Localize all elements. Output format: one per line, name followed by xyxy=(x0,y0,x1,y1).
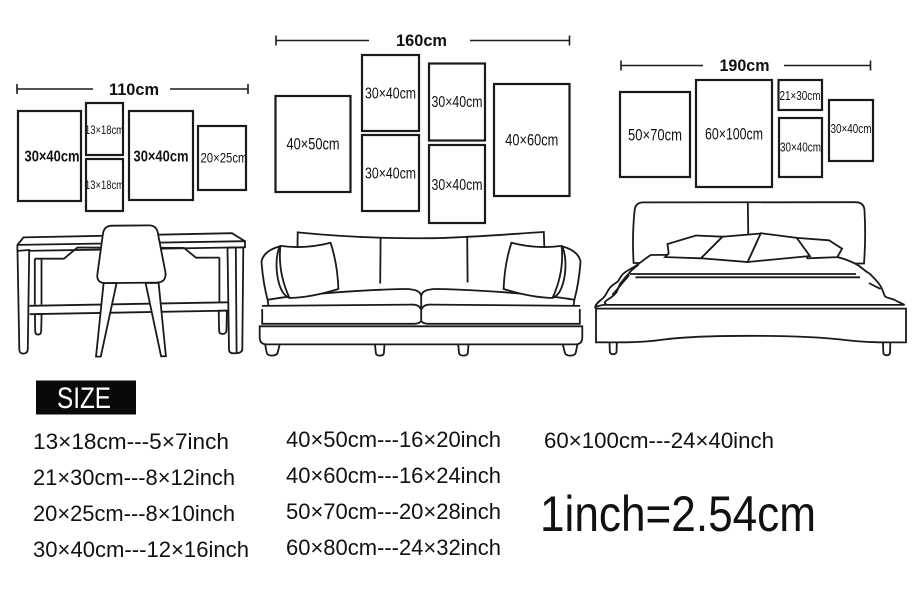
svg-text:50×70cm: 50×70cm xyxy=(628,126,682,145)
svg-text:30×40cm: 30×40cm xyxy=(365,166,416,183)
svg-text:30×40cm: 30×40cm xyxy=(25,149,80,166)
svg-text:160cm: 160cm xyxy=(396,31,447,50)
svg-text:30×40cm: 30×40cm xyxy=(432,177,483,194)
svg-text:20×25cm: 20×25cm xyxy=(201,150,248,166)
svg-text:60×100cm: 60×100cm xyxy=(705,125,763,144)
svg-text:21×30cm: 21×30cm xyxy=(780,88,821,103)
svg-text:30×40cm: 30×40cm xyxy=(831,121,872,136)
svg-text:30×40cm: 30×40cm xyxy=(134,149,189,166)
svg-text:60×100cm---24×40inch: 60×100cm---24×40inch xyxy=(544,428,774,453)
svg-text:60×80cm---24×32inch: 60×80cm---24×32inch xyxy=(286,535,501,560)
svg-text:110cm: 110cm xyxy=(109,80,159,99)
svg-text:40×60cm: 40×60cm xyxy=(505,132,558,150)
svg-text:40×60cm---16×24inch: 40×60cm---16×24inch xyxy=(286,463,501,488)
svg-text:1inch=2.54cm: 1inch=2.54cm xyxy=(540,486,816,542)
svg-text:20×25cm---8×10inch: 20×25cm---8×10inch xyxy=(33,501,235,526)
svg-text:SIZE: SIZE xyxy=(57,382,111,415)
svg-text:13×18cm---5×7inch: 13×18cm---5×7inch xyxy=(33,429,229,454)
svg-text:30×40cm---12×16inch: 30×40cm---12×16inch xyxy=(33,537,249,562)
svg-text:30×40cm: 30×40cm xyxy=(365,86,416,103)
svg-text:30×40cm: 30×40cm xyxy=(432,94,483,111)
svg-text:40×50cm: 40×50cm xyxy=(287,136,340,154)
svg-text:30×40cm: 30×40cm xyxy=(780,140,821,155)
svg-text:13×18cm: 13×18cm xyxy=(85,123,124,137)
svg-text:50×70cm---20×28inch: 50×70cm---20×28inch xyxy=(286,499,501,524)
svg-text:21×30cm---8×12inch: 21×30cm---8×12inch xyxy=(33,465,235,490)
svg-text:40×50cm---16×20inch: 40×50cm---16×20inch xyxy=(286,427,501,452)
svg-text:13×18cm: 13×18cm xyxy=(85,178,124,192)
svg-text:190cm: 190cm xyxy=(720,56,770,75)
